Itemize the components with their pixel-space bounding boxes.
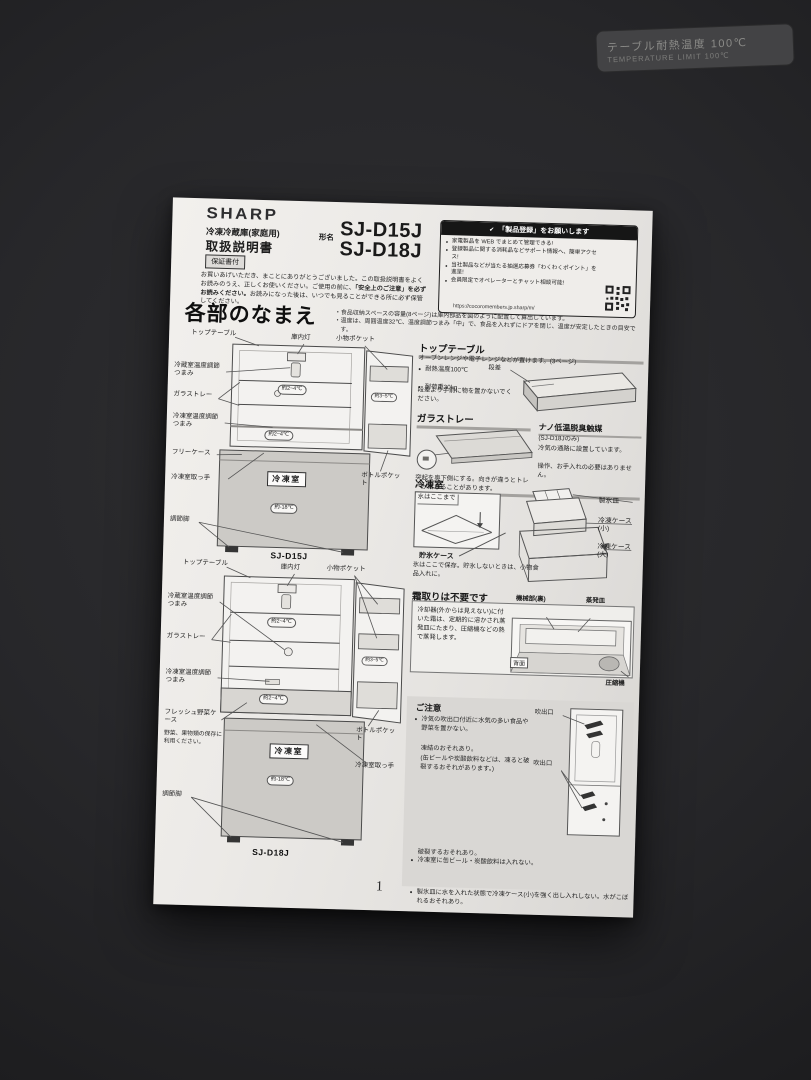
- label-case-large: 冷凍ケース(大): [597, 543, 639, 561]
- registration-title: 「製品登録」をお願いします: [498, 225, 589, 238]
- photo-background: テーブル耐熱温度 100℃ TEMPERATURE LIMIT 100℃ SHA…: [0, 0, 811, 1080]
- temp-lower: 約2~4℃: [259, 694, 288, 705]
- temp-freezer: 約-18℃: [270, 503, 298, 514]
- section-top-table: トップテーブル オーブンレンジや電子レンジなどが置けます。(3ページ) 耐熱温度…: [417, 340, 644, 414]
- caution-item-paren: (缶ビールや炭酸飲料などは、凍ると破裂するおそれがあります。): [420, 755, 530, 776]
- section-caution: ご注意 冷気の吹出口付近に水気の多い食品や野菜を置かない。 凍結のおそれあり。 …: [402, 696, 634, 892]
- manual-page: SHARP 冷凍冷蔵庫(家庭用) 形名 SJ-D15J SJ-D18J 取扱説明…: [153, 197, 653, 917]
- defrost-body: 冷却器(外からは見えない)に付いた霜は、定期的に溶かされ蒸発皿にたまり、圧縮機な…: [417, 606, 508, 644]
- glass-tray-graphic: [415, 423, 534, 476]
- label-freezer-handle: 冷凍室取っ手: [355, 762, 403, 771]
- label-glass-tray: ガラストレー: [167, 632, 206, 641]
- label-veg-note: 野菜、果物類の保存に利用ください。: [164, 730, 226, 747]
- temp-door: 約3~5℃: [371, 393, 397, 403]
- registration-check-icon: ✔: [489, 226, 494, 233]
- label-fridge-knob: 冷蔵室温度調節つまみ: [174, 362, 224, 380]
- section-defrost: 霜取りは不要です 冷却器(外からは見えない)に付いた霜は、定期的に溶かされ蒸発皿…: [409, 588, 637, 690]
- label-glass-tray: ガラストレー: [173, 391, 212, 400]
- caution-title: ご注意: [416, 701, 442, 714]
- label-bottle-pocket: ボトルポケット: [361, 472, 405, 489]
- water-level-graphic: [417, 508, 496, 546]
- label-air-vent: 吹出口: [535, 709, 565, 719]
- page-number: 1: [376, 879, 383, 895]
- registration-url: https://cocoromembers.jp.sharp/m/: [453, 303, 535, 311]
- ice-storage-note: 氷はここで保存。貯氷しないときは、小物食品入れに。: [412, 561, 544, 583]
- temp-door: 約3~5℃: [361, 656, 387, 666]
- brand-logo: SHARP: [206, 204, 279, 224]
- label-compressor: 圧縮機: [605, 678, 624, 688]
- label-ice-storage-case: 貯氷ケース: [419, 550, 454, 561]
- label-machine-section: 機械部(裏): [516, 593, 546, 603]
- label-air-vent: 吹出口: [533, 760, 563, 770]
- label-feet: 調節脚: [162, 790, 182, 799]
- label-small-pocket: 小物ポケット: [327, 565, 366, 574]
- label-bottle-pocket: ボトルポケット: [356, 727, 400, 744]
- label-top-table: トップテーブル: [191, 329, 236, 338]
- freezer-room-label: 冷凍室: [267, 471, 306, 487]
- diagram-sj-d15j: トップテーブル 庫内灯 小物ポケット 冷蔵室温度調節つまみ ガラストレー 冷凍室…: [169, 329, 415, 566]
- label-case-small: 冷凍ケース(小): [598, 517, 640, 535]
- label-feet: 調節脚: [170, 515, 190, 524]
- registration-bullets: 家電製品を WEB でまとめて管理できる! 登録製品に関する消耗品などサポート情…: [440, 235, 603, 292]
- label-free-case: フリーケース: [172, 449, 211, 458]
- temp-upper: 約2~4℃: [267, 617, 296, 628]
- section-freezer-room: 冷凍室 水はここまで: [412, 476, 640, 590]
- freezer-room-label: 冷凍室: [269, 743, 308, 759]
- caution-item-main: 冷気の吹出口付近に水気の多い食品や野菜を置かない。: [414, 715, 533, 736]
- model-numbers: SJ-D15J SJ-D18J: [339, 219, 423, 262]
- label-ice-tray: 製氷皿: [599, 497, 639, 507]
- label-veg-case: フレッシュ野菜ケース: [164, 708, 222, 726]
- label-freezer-handle: 冷凍室取っ手: [171, 473, 227, 483]
- model-prefix: 形名: [319, 232, 334, 243]
- model-2: SJ-D18J: [339, 240, 422, 263]
- label-back-side: 背面: [510, 657, 528, 668]
- temp-freezer: 約-18℃: [267, 775, 295, 786]
- label-top-table: トップテーブル: [183, 559, 228, 568]
- label-small-pocket: 小物ポケット: [336, 335, 375, 344]
- top-table-graphic: [509, 361, 643, 415]
- top-table-note: 段差より手前に物を置かないでください。: [417, 386, 517, 407]
- label-freezer-knob: 冷凍室温度調節つまみ: [173, 413, 223, 431]
- nano-line: 冷気の通路に設置しています。: [538, 445, 641, 457]
- qr-code: [604, 285, 632, 313]
- vent-diagram: [559, 707, 629, 841]
- water-level-label: 水はここまで: [417, 493, 458, 505]
- label-freezer-knob: 冷凍室温度調節つまみ: [165, 668, 215, 686]
- label-evaporator-tray: 蒸発皿: [586, 595, 605, 605]
- document-title: 取扱説明書: [205, 235, 273, 256]
- label-lamp: 庫内灯: [281, 564, 301, 573]
- label-lamp: 庫内灯: [291, 334, 311, 343]
- page-section-title: 各部のなまえ: [184, 297, 317, 331]
- temp-upper: 約2~4℃: [278, 384, 307, 395]
- label-fridge-knob: 冷蔵室温度調節つまみ: [167, 592, 217, 610]
- step-label: 段差: [488, 364, 501, 373]
- warranty-badge: 保証書付: [205, 254, 245, 269]
- temp-lower: 約2~4℃: [264, 430, 293, 441]
- surface-temperature-sticker: テーブル耐熱温度 100℃ TEMPERATURE LIMIT 100℃: [595, 23, 794, 73]
- diagram-sj-d18j: トップテーブル 庫内灯 小物ポケット 冷蔵室温度調節つまみ ガラストレー 冷凍室…: [160, 558, 409, 900]
- caution-item-main: 製氷皿に水を入れた状態で冷凍ケース(小)を強く出し入れしない。水がこぼれるおそれ…: [409, 888, 630, 912]
- product-registration-box: ✔ 「製品登録」をお願いします 家電製品を WEB でまとめて管理できる! 登録…: [438, 220, 639, 318]
